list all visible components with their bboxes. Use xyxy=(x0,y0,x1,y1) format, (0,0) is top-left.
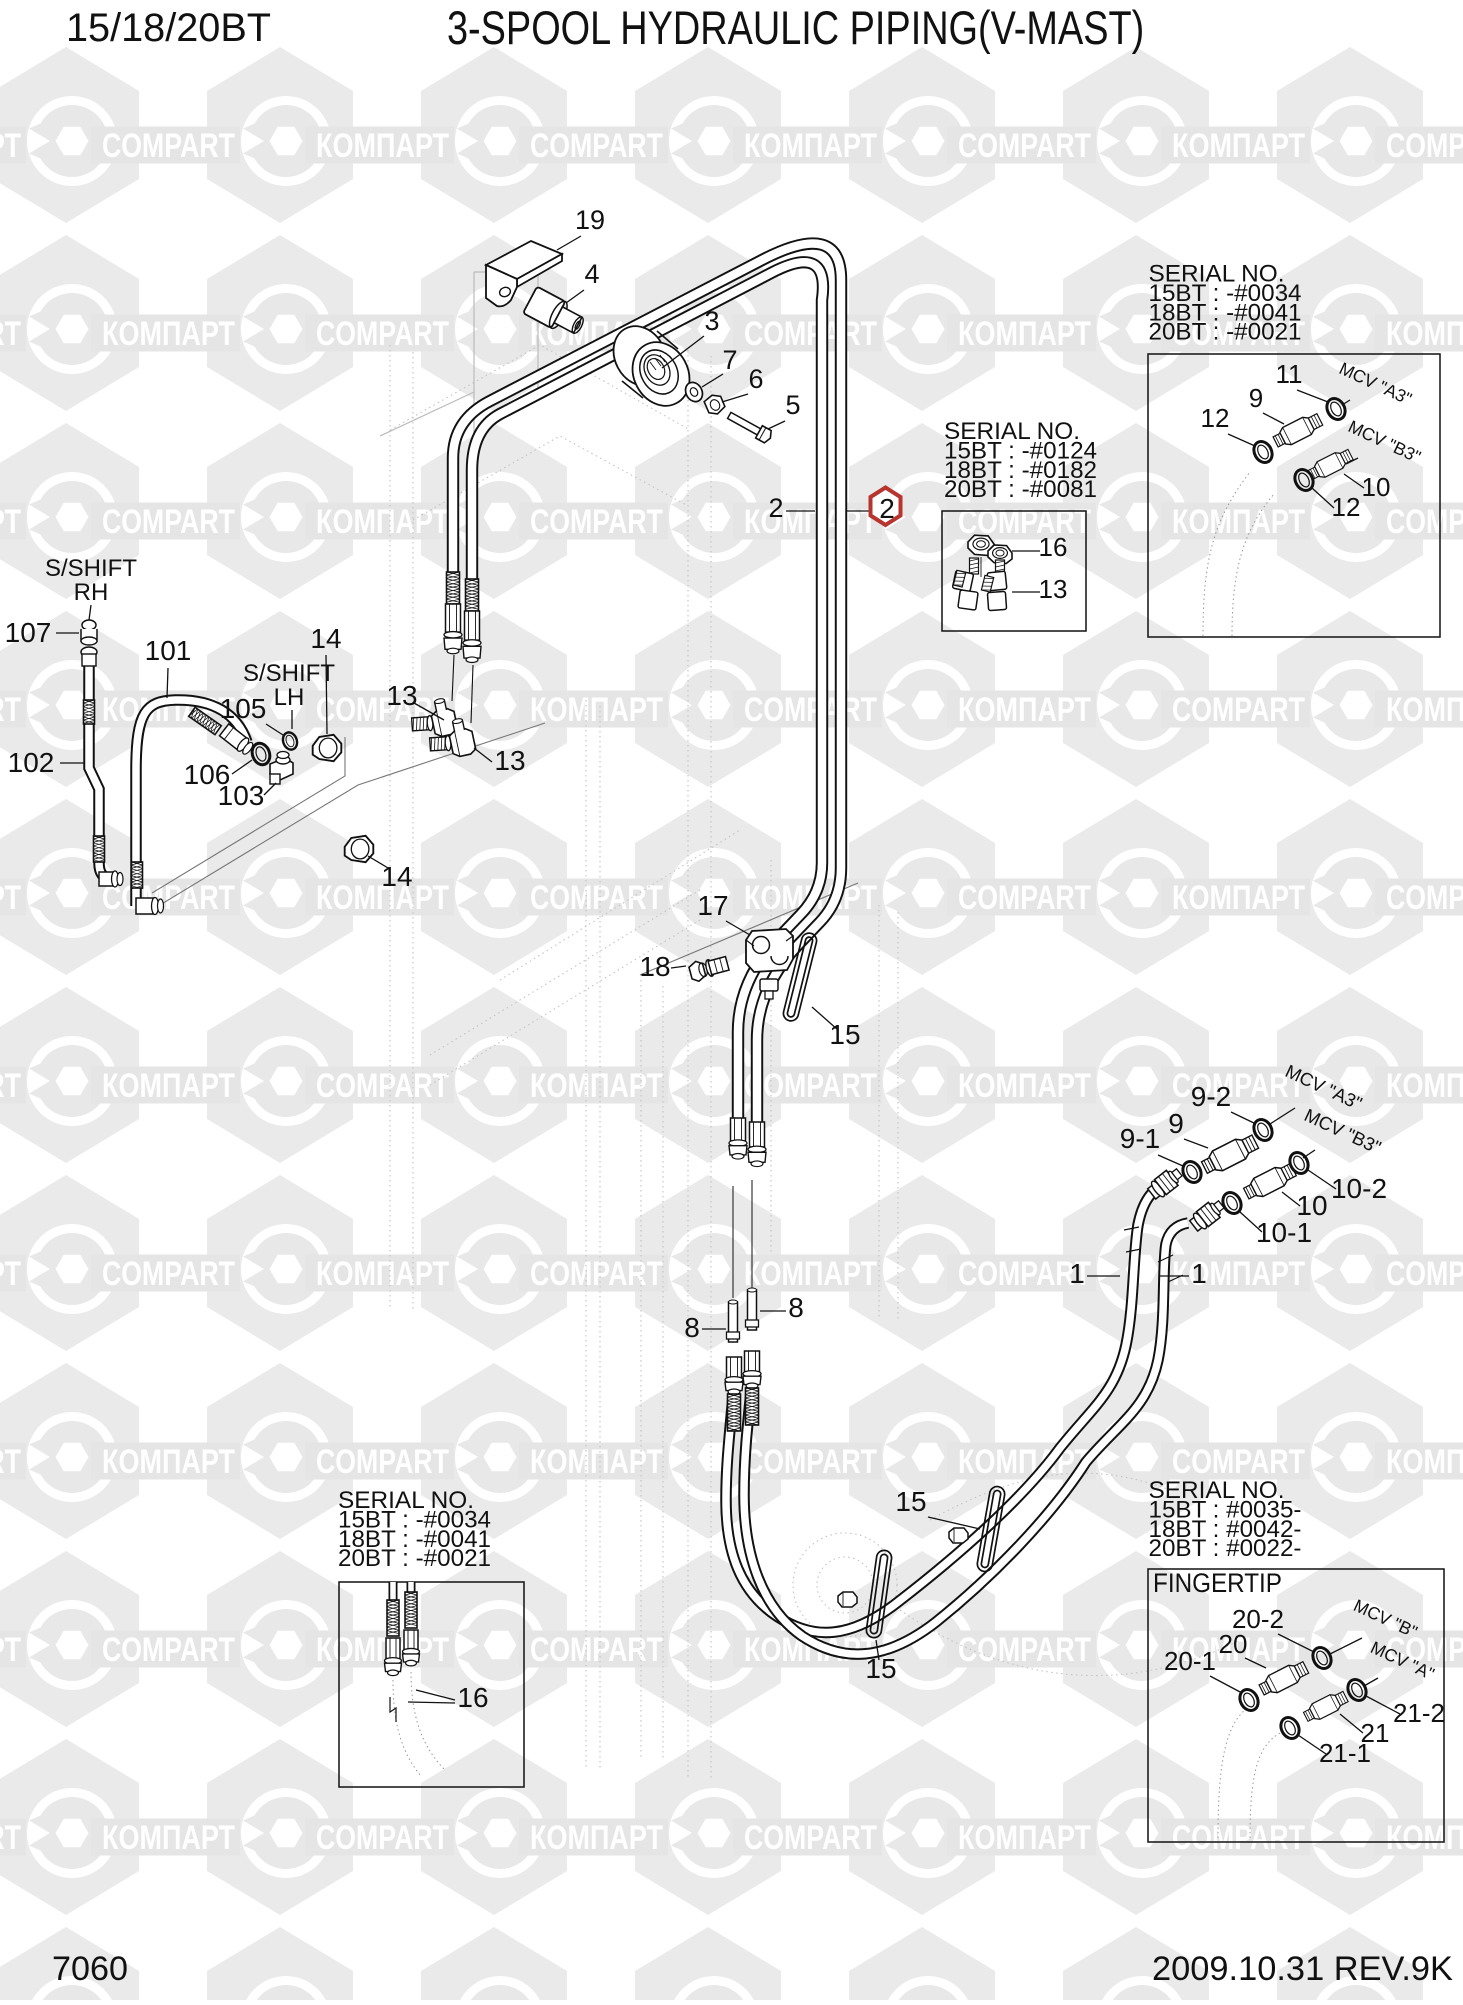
svg-text:КОМПАРТ: КОМПАРТ xyxy=(0,127,21,165)
svg-text:КОМПАРТ: КОМПАРТ xyxy=(102,1819,235,1857)
svg-text:LH: LH xyxy=(274,684,305,711)
svg-text:КОМПАРТ: КОМПАРТ xyxy=(0,1255,21,1293)
svg-text:COMPART: COMPART xyxy=(0,691,21,729)
svg-text:20-1: 20-1 xyxy=(1164,1646,1216,1676)
svg-text:COMPART: COMPART xyxy=(1386,127,1463,165)
svg-text:10: 10 xyxy=(1296,1190,1327,1221)
svg-text:19: 19 xyxy=(575,205,605,235)
svg-text:КОМПАРТ: КОМПАРТ xyxy=(0,503,21,541)
svg-text:COMPART: COMPART xyxy=(0,315,21,353)
svg-text:3-SPOOL HYDRAULIC PIPING(V-MAS: 3-SPOOL HYDRAULIC PIPING(V-MAST) xyxy=(447,2,1144,55)
svg-text:105: 105 xyxy=(220,693,267,724)
svg-text:15: 15 xyxy=(895,1486,926,1517)
svg-text:S/SHIFT: S/SHIFT xyxy=(45,555,137,582)
svg-text:COMPART: COMPART xyxy=(1386,1255,1463,1293)
svg-text:COMPART: COMPART xyxy=(530,1631,663,1669)
svg-text:КОМПАРТ: КОМПАРТ xyxy=(1386,1819,1463,1857)
svg-text:КОМПАРТ: КОМПАРТ xyxy=(316,1255,449,1293)
svg-text:COMPART: COMPART xyxy=(530,127,663,165)
svg-text:10: 10 xyxy=(1362,472,1391,502)
svg-text:КОМПАРТ: КОМПАРТ xyxy=(1386,691,1463,729)
svg-text:2: 2 xyxy=(768,493,783,523)
svg-text:КОМПАРТ: КОМПАРТ xyxy=(316,127,449,165)
svg-text:20BT : -#0081: 20BT : -#0081 xyxy=(944,476,1097,503)
svg-text:COMPART: COMPART xyxy=(1172,1443,1305,1481)
svg-text:COMPART: COMPART xyxy=(530,1255,663,1293)
svg-text:20: 20 xyxy=(1219,1629,1248,1659)
svg-text:КОМПАРТ: КОМПАРТ xyxy=(530,691,663,729)
svg-text:COMPART: COMPART xyxy=(0,1067,21,1105)
svg-text:15: 15 xyxy=(829,1019,860,1050)
svg-text:КОМПАРТ: КОМПАРТ xyxy=(1172,879,1305,917)
svg-text:FINGERTIP: FINGERTIP xyxy=(1153,1568,1282,1598)
svg-text:КОМПАРТ: КОМПАРТ xyxy=(958,691,1091,729)
svg-text:КОМПАРТ: КОМПАРТ xyxy=(744,1255,877,1293)
svg-text:КОМПАРТ: КОМПАРТ xyxy=(0,1631,21,1669)
svg-text:КОМПАРТ: КОМПАРТ xyxy=(1386,315,1463,353)
svg-text:COMPART: COMPART xyxy=(744,1819,877,1857)
svg-text:COMPART: COMPART xyxy=(744,1067,877,1105)
svg-text:КОМПАРТ: КОМПАРТ xyxy=(316,1631,449,1669)
svg-text:КОМПАРТ: КОМПАРТ xyxy=(530,1443,663,1481)
svg-text:9: 9 xyxy=(1249,383,1263,413)
svg-text:7: 7 xyxy=(722,345,737,375)
svg-text:13: 13 xyxy=(494,745,525,776)
svg-text:S/SHIFT: S/SHIFT xyxy=(243,660,335,687)
svg-text:КОМПАРТ: КОМПАРТ xyxy=(102,315,235,353)
svg-text:КОМПАРТ: КОМПАРТ xyxy=(102,1067,235,1105)
svg-text:COMPART: COMPART xyxy=(102,127,235,165)
svg-text:COMPART: COMPART xyxy=(744,691,877,729)
svg-text:12: 12 xyxy=(1201,403,1230,433)
svg-text:101: 101 xyxy=(145,635,192,666)
svg-text:COMPART: COMPART xyxy=(316,315,449,353)
svg-text:18: 18 xyxy=(639,951,670,982)
svg-text:COMPART: COMPART xyxy=(102,503,235,541)
svg-text:13: 13 xyxy=(1039,574,1068,604)
svg-text:3: 3 xyxy=(704,306,719,336)
svg-text:COMPART: COMPART xyxy=(1386,503,1463,541)
svg-text:5: 5 xyxy=(785,390,800,420)
svg-text:13: 13 xyxy=(386,680,417,711)
svg-text:COMPART: COMPART xyxy=(744,1443,877,1481)
svg-text:10-2: 10-2 xyxy=(1331,1173,1387,1204)
svg-text:15: 15 xyxy=(865,1653,896,1684)
svg-text:КОМПАРТ: КОМПАРТ xyxy=(530,1819,663,1857)
svg-text:102: 102 xyxy=(8,747,55,778)
svg-text:16: 16 xyxy=(457,1682,488,1713)
svg-text:21-1: 21-1 xyxy=(1319,1738,1371,1768)
svg-text:17: 17 xyxy=(697,890,728,921)
svg-text:20BT : #0022-: 20BT : #0022- xyxy=(1149,1535,1302,1562)
svg-text:КОМПАРТ: КОМПАРТ xyxy=(744,503,877,541)
svg-text:COMPART: COMPART xyxy=(316,1067,449,1105)
svg-text:2009.10.31 REV.9K: 2009.10.31 REV.9K xyxy=(1152,1950,1453,1988)
svg-text:9: 9 xyxy=(1168,1108,1184,1139)
svg-text:COMPART: COMPART xyxy=(1386,879,1463,917)
svg-text:COMPART: COMPART xyxy=(0,1443,21,1481)
svg-text:COMPART: COMPART xyxy=(530,503,663,541)
svg-text:6: 6 xyxy=(748,364,763,394)
svg-text:COMPART: COMPART xyxy=(958,879,1091,917)
svg-text:КОМПАРТ: КОМПАРТ xyxy=(1172,503,1305,541)
svg-text:COMPART: COMPART xyxy=(958,1631,1091,1669)
svg-text:КОМПАРТ: КОМПАРТ xyxy=(316,503,449,541)
svg-text:1: 1 xyxy=(1069,1258,1085,1289)
svg-text:COMPART: COMPART xyxy=(530,879,663,917)
svg-text:COMPART: COMPART xyxy=(102,1255,235,1293)
svg-text:107: 107 xyxy=(5,617,52,648)
svg-text:КОМПАРТ: КОМПАРТ xyxy=(744,127,877,165)
svg-text:4: 4 xyxy=(584,259,599,289)
svg-text:COMPART: COMPART xyxy=(744,315,877,353)
svg-text:КОМПАРТ: КОМПАРТ xyxy=(530,1067,663,1105)
svg-text:RH: RH xyxy=(74,579,109,606)
svg-text:14: 14 xyxy=(381,861,412,892)
svg-text:COMPART: COMPART xyxy=(316,1443,449,1481)
svg-text:11: 11 xyxy=(1276,359,1303,389)
svg-text:7060: 7060 xyxy=(52,1950,128,1988)
svg-text:12: 12 xyxy=(1332,492,1361,522)
svg-text:14: 14 xyxy=(310,623,341,654)
svg-text:COMPART: COMPART xyxy=(1172,1819,1305,1857)
svg-text:COMPART: COMPART xyxy=(958,127,1091,165)
svg-text:21-2: 21-2 xyxy=(1393,1698,1445,1728)
svg-text:КОМПАРТ: КОМПАРТ xyxy=(102,1443,235,1481)
svg-text:COMPART: COMPART xyxy=(316,1819,449,1857)
svg-text:103: 103 xyxy=(218,780,265,811)
svg-text:КОМПАРТ: КОМПАРТ xyxy=(958,315,1091,353)
svg-text:8: 8 xyxy=(684,1312,700,1343)
svg-text:COMPART: COMPART xyxy=(102,1631,235,1669)
svg-text:1: 1 xyxy=(1191,1258,1207,1289)
svg-text:КОМПАРТ: КОМПАРТ xyxy=(1386,1067,1463,1105)
svg-text:КОМПАРТ: КОМПАРТ xyxy=(1172,127,1305,165)
svg-text:COMPART: COMPART xyxy=(1172,691,1305,729)
svg-text:20BT : -#0021: 20BT : -#0021 xyxy=(1149,319,1302,346)
svg-text:15/18/20BT: 15/18/20BT xyxy=(66,6,271,50)
svg-text:10-1: 10-1 xyxy=(1256,1217,1312,1248)
svg-text:КОМПАРТ: КОМПАРТ xyxy=(1386,1443,1463,1481)
svg-text:9-2: 9-2 xyxy=(1191,1081,1231,1112)
svg-text:20BT : -#0021: 20BT : -#0021 xyxy=(338,1545,491,1572)
svg-text:КОМПАРТ: КОМПАРТ xyxy=(958,1067,1091,1105)
svg-text:9-1: 9-1 xyxy=(1120,1123,1160,1154)
svg-text:2: 2 xyxy=(879,493,895,524)
svg-text:КОМПАРТ: КОМПАРТ xyxy=(0,879,21,917)
svg-text:КОМПАРТ: КОМПАРТ xyxy=(958,1819,1091,1857)
svg-text:8: 8 xyxy=(788,1292,804,1323)
svg-text:16: 16 xyxy=(1039,532,1068,562)
svg-text:COMPART: COMPART xyxy=(0,1819,21,1857)
